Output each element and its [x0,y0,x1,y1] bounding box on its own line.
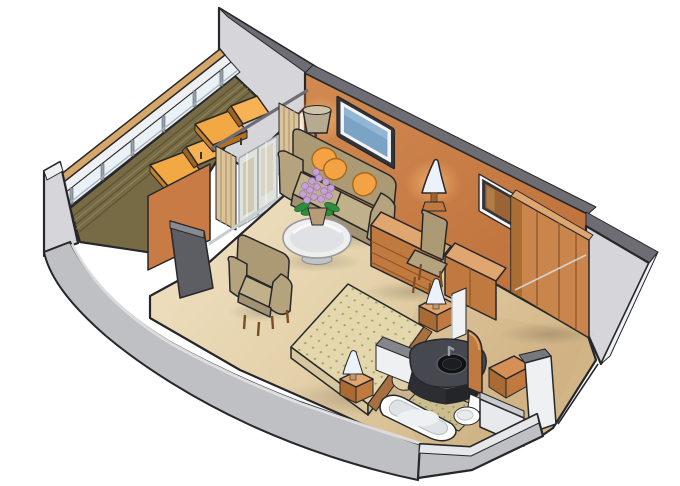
stateroom-isometric-plan [0,0,680,486]
throw-pillow [324,159,347,180]
floor-plan-illustration [0,0,680,486]
bathroom-door-panel [468,330,482,394]
shower-column [452,288,466,340]
right-wall [586,212,658,364]
